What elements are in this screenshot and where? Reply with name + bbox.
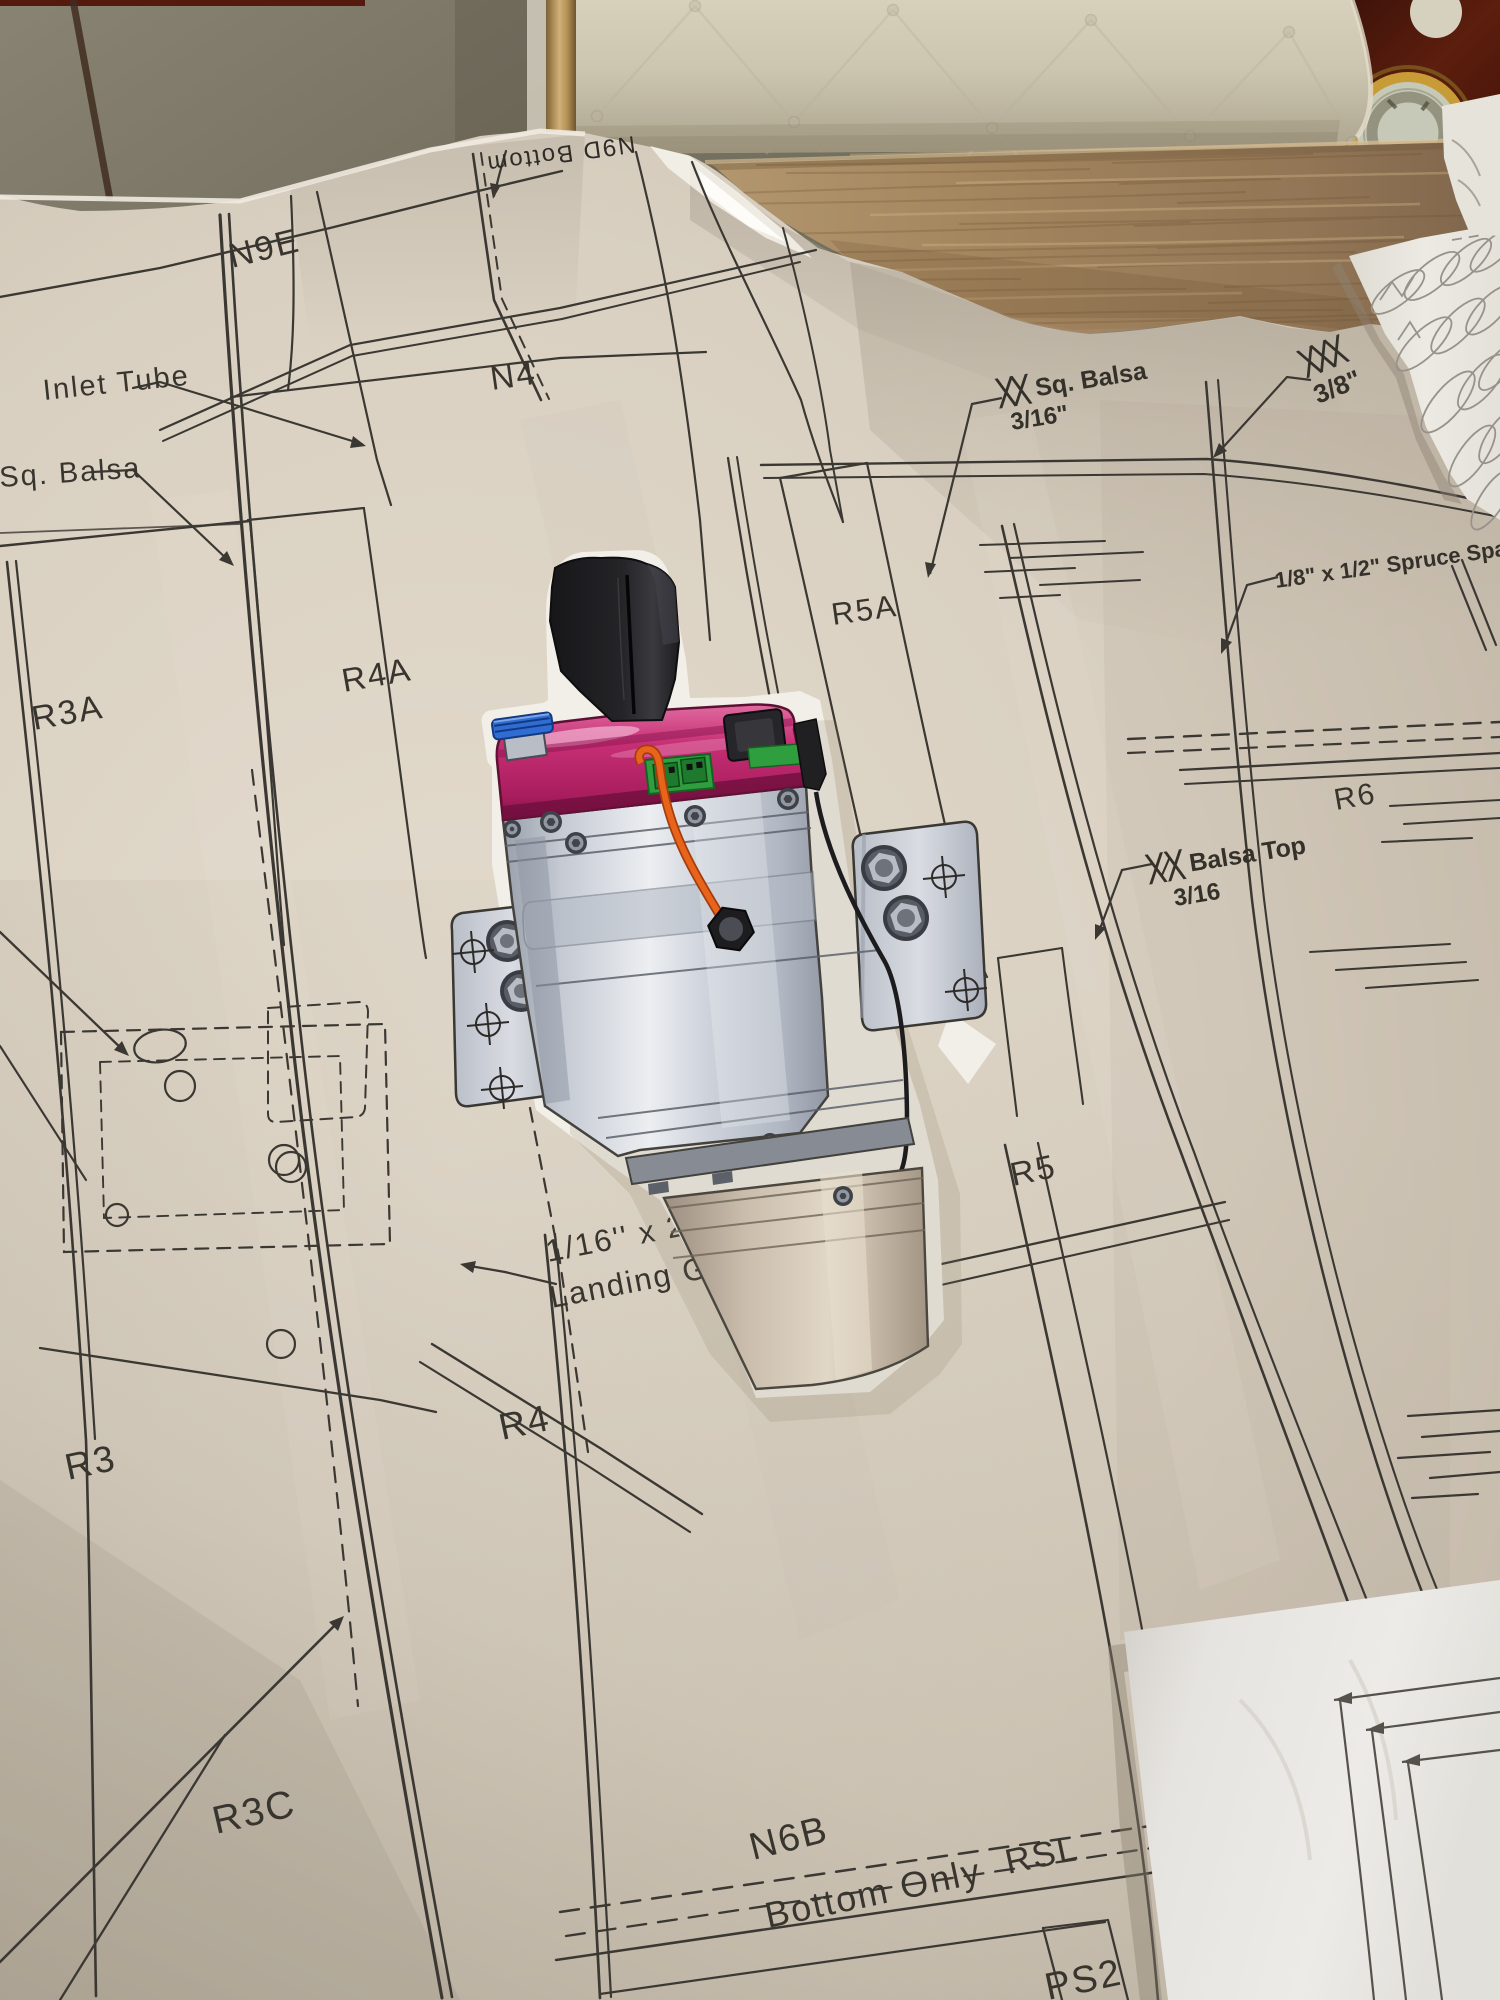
svg-text:N4: N4 xyxy=(488,354,539,397)
